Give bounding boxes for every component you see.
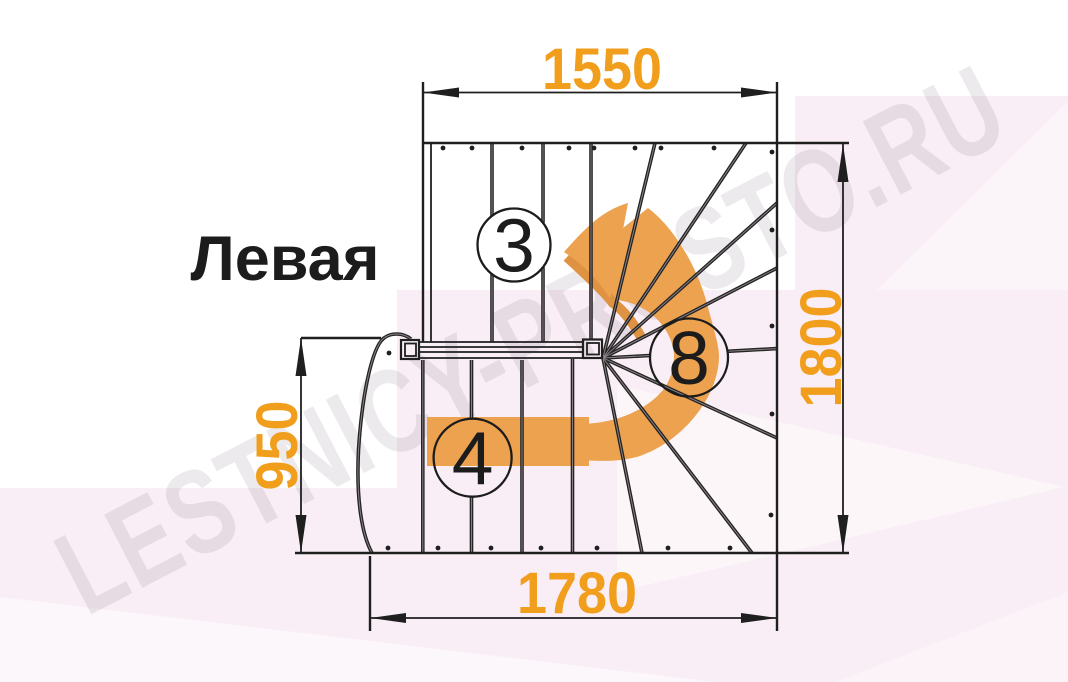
svg-text:1800: 1800 [788,288,853,408]
svg-text:950: 950 [244,401,309,491]
svg-text:1550: 1550 [542,36,662,101]
svg-text:Левая: Левая [191,224,380,294]
svg-text:4: 4 [452,416,494,500]
svg-text:3: 3 [493,204,535,288]
svg-text:8: 8 [668,316,710,400]
svg-text:1780: 1780 [517,560,637,625]
